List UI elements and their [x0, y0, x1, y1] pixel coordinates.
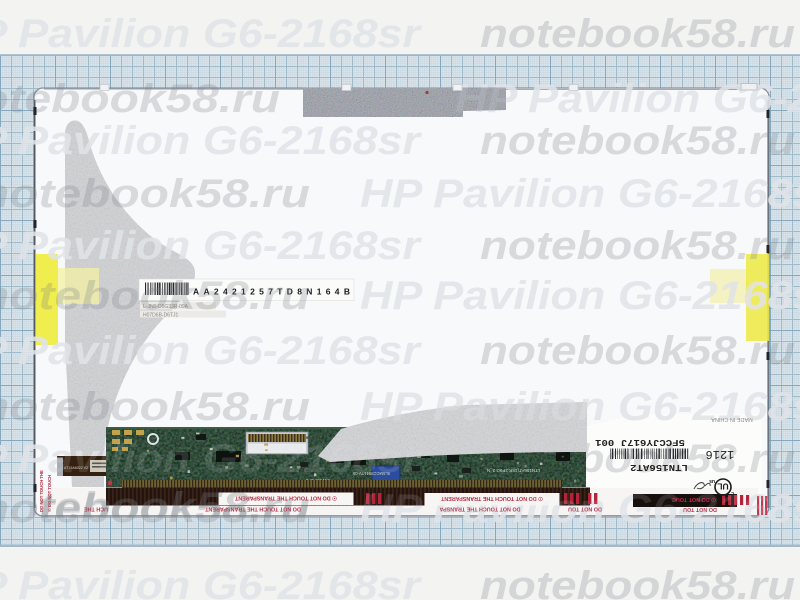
svg-text:notebook58.ru: notebook58.ru	[0, 274, 310, 318]
svg-text:notebook58.ru: notebook58.ru	[0, 172, 310, 216]
svg-text:notebook58.ru: notebook58.ru	[0, 385, 310, 429]
svg-text:1216: 1216	[706, 447, 735, 461]
svg-text:HP Pavilion G6-2168sr: HP Pavilion G6-2168sr	[0, 564, 423, 600]
svg-text:LTN156AT2: LTN156AT2	[630, 462, 688, 473]
svg-text:5FCCJY617J 001: 5FCCJY617J 001	[594, 437, 685, 447]
svg-text:HP Pavilion G6-2168sr: HP Pavilion G6-2168sr	[360, 172, 800, 216]
svg-text:HP Pavilion G6-2168sr: HP Pavilion G6-2168sr	[0, 329, 423, 373]
svg-text:notebook58.ru: notebook58.ru	[480, 329, 795, 373]
svg-text:notebook58.ru: notebook58.ru	[480, 564, 795, 600]
svg-text:HP Pavilion G6-2168sr: HP Pavilion G6-2168sr	[360, 274, 800, 318]
svg-text:LTN156AT(18R,2P9G 2_N: LTN156AT(18R,2P9G 2_N	[487, 468, 540, 473]
svg-text:notebook58.ru: notebook58.ru	[480, 119, 795, 163]
svg-text:HP Pavilion G6-2168sr: HP Pavilion G6-2168sr	[0, 12, 423, 56]
svg-text:HP Pavilion G6-2168sr: HP Pavilion G6-2168sr	[360, 487, 800, 531]
svg-text:HP Pavilion G6-2168sr: HP Pavilion G6-2168sr	[0, 224, 423, 268]
svg-text:HP Pavilion G6-2168sr: HP Pavilion G6-2168sr	[0, 437, 423, 481]
svg-text:notebook58.ru: notebook58.ru	[480, 224, 795, 268]
svg-text:notebook58.ru: notebook58.ru	[0, 77, 280, 121]
svg-text:HP Pavilion G6-2168sr: HP Pavilion G6-2168sr	[0, 119, 423, 163]
svg-text:HP Pavilion G6-2168sr: HP Pavilion G6-2168sr	[455, 77, 800, 121]
svg-text:us: us	[709, 478, 715, 484]
svg-text:HP Pavilion G6-2168sr: HP Pavilion G6-2168sr	[360, 385, 800, 429]
svg-text:notebook58.ru: notebook58.ru	[480, 12, 795, 56]
